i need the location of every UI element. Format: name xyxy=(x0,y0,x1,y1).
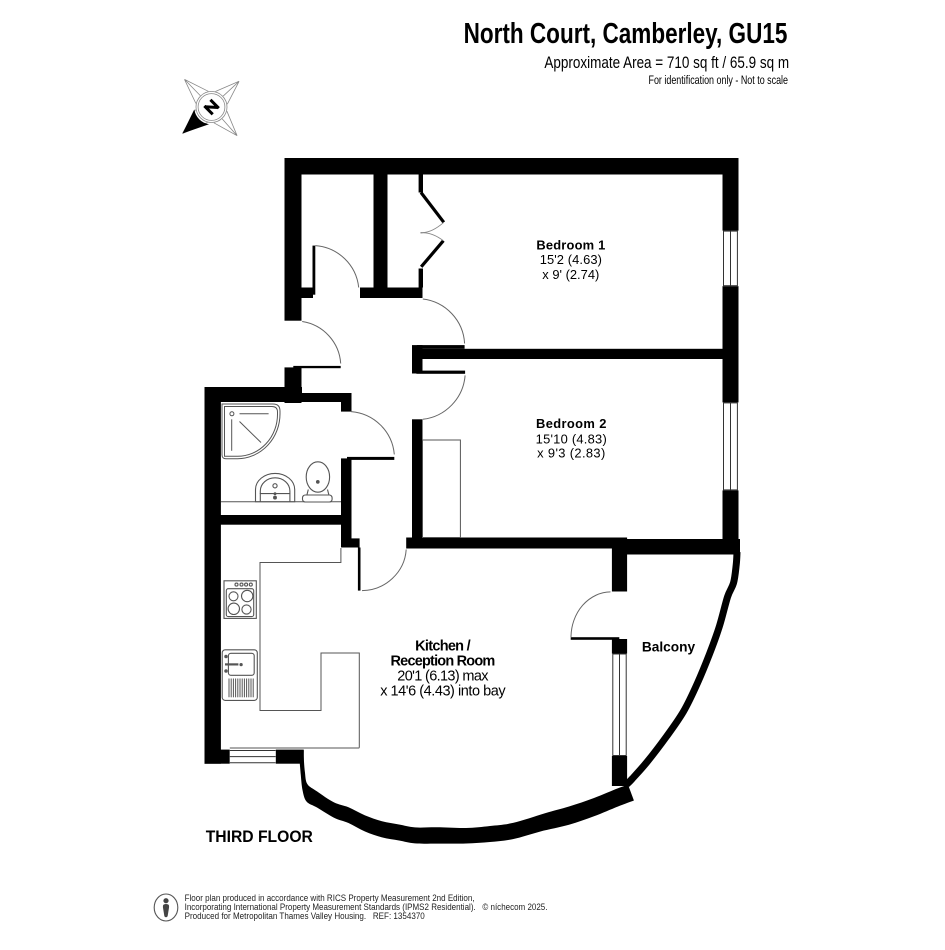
svg-text:Balcony: Balcony xyxy=(642,639,695,655)
svg-text:Reception Room: Reception Room xyxy=(391,654,496,670)
svg-text:x 9' (2.74): x 9' (2.74) xyxy=(542,267,599,282)
svg-text:Kitchen /: Kitchen / xyxy=(415,638,471,654)
svg-text:Produced for Metropolitan Tham: Produced for Metropolitan Thames Valley … xyxy=(185,911,425,922)
svg-text:Approximate Area = 710 sq ft /: Approximate Area = 710 sq ft / 65.9 sq m xyxy=(544,54,789,72)
svg-text:Bedroom 2: Bedroom 2 xyxy=(536,416,606,431)
svg-text:20'1 (6.13) max: 20'1 (6.13) max xyxy=(397,669,489,685)
svg-text:North Court, Camberley, GU15: North Court, Camberley, GU15 xyxy=(464,18,788,50)
svg-text:Bedroom 1: Bedroom 1 xyxy=(536,237,605,252)
svg-text:15'10 (4.83): 15'10 (4.83) xyxy=(536,431,607,446)
svg-text:x 14'6 (4.43) into bay: x 14'6 (4.43) into bay xyxy=(380,684,506,700)
svg-text:For identification only - Not: For identification only - Not to scale xyxy=(649,73,789,87)
svg-text:x 9'3 (2.83): x 9'3 (2.83) xyxy=(537,446,605,461)
svg-text:15'2 (4.63): 15'2 (4.63) xyxy=(540,252,602,267)
svg-text:THIRD FLOOR: THIRD FLOOR xyxy=(206,827,313,846)
